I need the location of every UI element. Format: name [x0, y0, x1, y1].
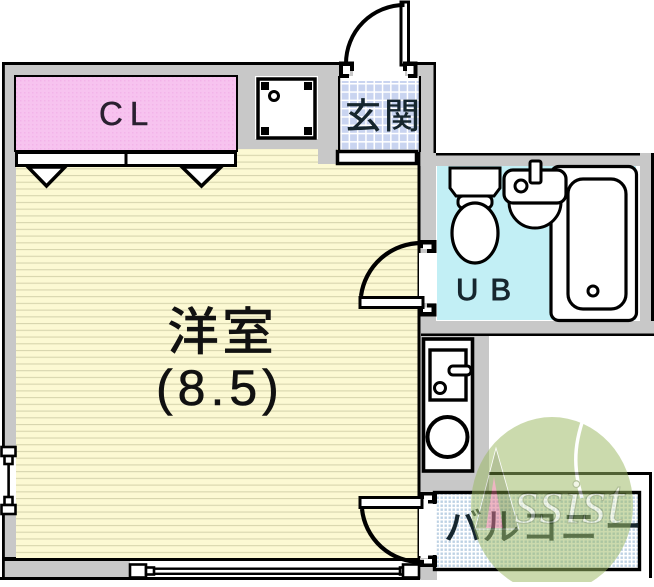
svg-text:CL: CL	[99, 95, 155, 132]
svg-text:ssist: ssist	[514, 466, 627, 537]
svg-text:(8.5): (8.5)	[156, 360, 284, 416]
svg-text:UB: UB	[456, 272, 523, 307]
